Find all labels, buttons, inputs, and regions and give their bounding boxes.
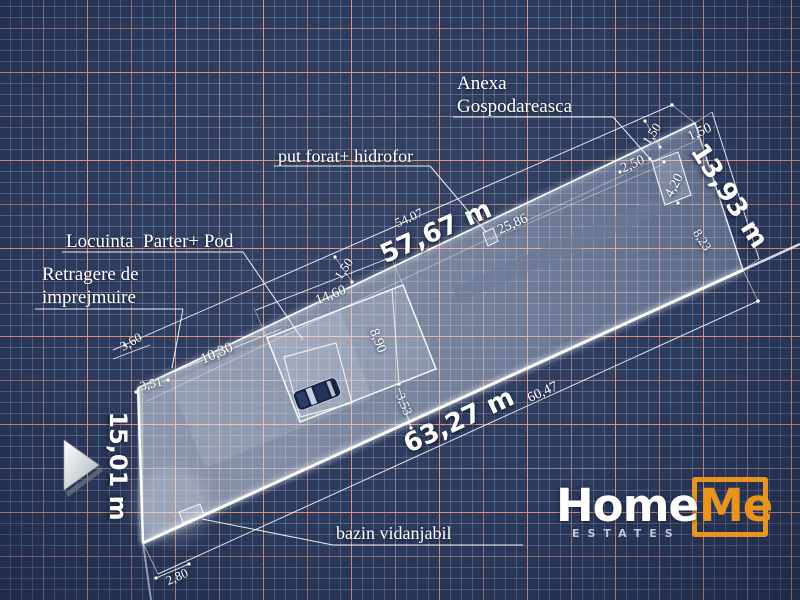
logo-text-home: Home <box>556 483 698 528</box>
logo-text-me: Me <box>699 483 772 528</box>
setback-label-line1: Retragere de <box>42 264 139 285</box>
direction-triangle-icon <box>64 440 103 497</box>
site-plan-canvas: AnexaGospodareasca put forat+ hidrofor L… <box>0 0 800 600</box>
septic-label: bazin vidanjabil <box>336 522 451 545</box>
dim-left-total: 15,01 m <box>104 411 132 520</box>
annex-label-line1: Anexa <box>457 73 507 94</box>
setback-label: Retragere deimprejmuire <box>42 263 139 309</box>
house-label: Locuinta Parter+ Pod <box>66 230 233 253</box>
annex-label: AnexaGospodareasca <box>457 72 572 118</box>
logo-text-estates: ESTATES <box>572 527 681 540</box>
well-label: put forat+ hidrofor <box>278 145 413 168</box>
annex-label-line2: Gospodareasca <box>457 96 572 117</box>
setback-label-line2: imprejmuire <box>42 287 136 308</box>
